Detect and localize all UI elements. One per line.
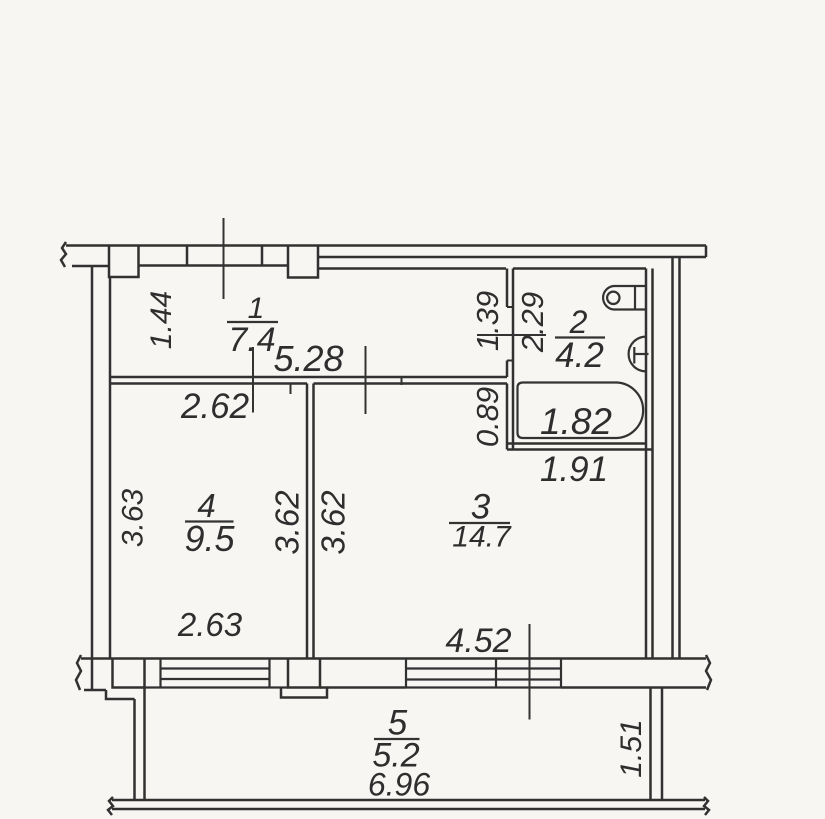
svg-text:3.62: 3.62 (269, 490, 306, 554)
svg-text:6.96: 6.96 (368, 767, 430, 803)
svg-text:2: 2 (569, 304, 588, 340)
svg-text:1.82: 1.82 (540, 401, 612, 442)
svg-text:3.63: 3.63 (117, 488, 150, 547)
svg-text:9.5: 9.5 (184, 518, 235, 559)
svg-text:7.4: 7.4 (228, 321, 275, 359)
svg-text:4.52: 4.52 (445, 622, 511, 660)
svg-text:1.39: 1.39 (470, 291, 505, 351)
svg-text:2.29: 2.29 (515, 292, 550, 353)
svg-text:0.89: 0.89 (470, 387, 505, 447)
svg-text:2.62: 2.62 (180, 387, 249, 426)
svg-text:5.28: 5.28 (273, 338, 343, 379)
svg-text:1.51: 1.51 (615, 719, 648, 777)
svg-text:14.7: 14.7 (452, 521, 512, 554)
svg-text:1.44: 1.44 (145, 291, 178, 349)
svg-text:2.63: 2.63 (177, 606, 243, 643)
svg-text:3.62: 3.62 (315, 490, 352, 554)
svg-text:1.91: 1.91 (540, 450, 608, 489)
svg-text:4.2: 4.2 (555, 336, 604, 375)
